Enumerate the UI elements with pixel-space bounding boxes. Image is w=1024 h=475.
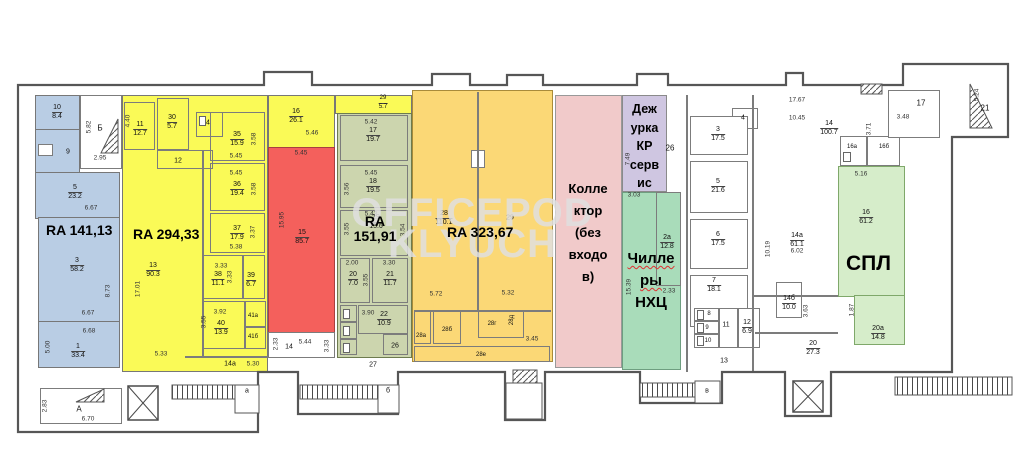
zone-label-dezhurka: Деж урка КР серв ис bbox=[622, 100, 667, 193]
dim: 5.33 bbox=[155, 351, 168, 358]
stair-triangle-B bbox=[101, 119, 118, 153]
room-label-39: 396.7 bbox=[246, 272, 256, 288]
zone-label-ra15191-l2: 151,91 bbox=[349, 229, 401, 244]
dim: 5.45 bbox=[295, 150, 308, 157]
toilet-icon bbox=[199, 116, 206, 126]
dim: 3.33 bbox=[227, 271, 234, 284]
dim: 6.68 bbox=[83, 328, 96, 335]
room-label-12: 12 bbox=[174, 158, 182, 165]
zone-label-ra14113: RA 141,13 bbox=[46, 222, 112, 238]
room-label-17r: 17 bbox=[917, 99, 926, 108]
dim: 2.83 bbox=[42, 400, 49, 413]
kollektor-l1: Колле bbox=[556, 178, 620, 200]
stair-hatch-a bbox=[172, 385, 235, 399]
room-label-38: 3811.1 bbox=[211, 271, 224, 287]
toilet-icon bbox=[343, 309, 350, 319]
room-label-28d: 28д bbox=[509, 315, 515, 325]
room-label-14a: 14а bbox=[224, 361, 236, 368]
stair-hatch-right bbox=[895, 377, 1012, 395]
stair-label-A: А bbox=[76, 405, 81, 414]
room-label-w9: 9 bbox=[705, 325, 708, 331]
kollektor-l2: ктор bbox=[556, 200, 620, 222]
dim: 6.67 bbox=[82, 310, 95, 317]
dim: 3.30 bbox=[383, 260, 396, 267]
room-label-28e: 28е bbox=[476, 352, 486, 358]
dim: 2.33 bbox=[273, 338, 280, 351]
dezhurka-l3: КР bbox=[622, 137, 667, 156]
kollektor-l3: (без bbox=[556, 222, 620, 244]
room-label-w12: 126.9 bbox=[742, 319, 752, 335]
dim: 5.46 bbox=[306, 130, 319, 137]
dim: 15.95 bbox=[279, 212, 286, 228]
room-label-28g: 28г bbox=[488, 321, 497, 327]
toilet-icon bbox=[697, 336, 704, 346]
dim: 17.67 bbox=[789, 97, 805, 104]
room-label-22: 2210.9 bbox=[377, 311, 391, 327]
dim: 5.44 bbox=[299, 339, 312, 346]
dim: 10.45 bbox=[789, 115, 805, 122]
dim: 3.03 bbox=[628, 192, 641, 199]
dim: 5.30 bbox=[247, 361, 260, 368]
floor-plan: OFFICEPOD KLYUCH RA 141,13 RA 294,33 RA … bbox=[0, 0, 1024, 475]
shaft-hatch-top bbox=[861, 84, 882, 94]
dim: 17.01 bbox=[135, 281, 142, 297]
stair-label-b: б bbox=[386, 388, 390, 395]
room-label-20a: 20а14.8 bbox=[871, 325, 885, 341]
dim: 6.67 bbox=[85, 205, 98, 212]
toilet-icon bbox=[697, 310, 704, 320]
dim: 3.92 bbox=[214, 309, 227, 316]
dim: 10.19 bbox=[765, 241, 772, 257]
room-label-20r: 2027.3 bbox=[806, 340, 820, 356]
room-label-30: 305.7 bbox=[167, 114, 177, 130]
dim: 3.45 bbox=[526, 336, 539, 343]
room-label-40: 4013.9 bbox=[214, 320, 228, 336]
room-label-17: 1719.7 bbox=[366, 127, 380, 143]
stair-hatch-v bbox=[640, 383, 695, 397]
chillery-l3: НХЦ bbox=[622, 292, 680, 314]
room-label-20: 207.0 bbox=[348, 271, 358, 287]
dezhurka-l2: урка bbox=[622, 119, 667, 138]
stair-triangle-A bbox=[76, 389, 104, 402]
room-label-w4: 4 bbox=[741, 115, 745, 122]
zone-label-ra29433: RA 294,33 bbox=[133, 226, 199, 242]
shaft-hatch-center bbox=[513, 370, 537, 383]
dim: 5.16 bbox=[855, 171, 868, 178]
zone-label-ra15191: RA 151,91 bbox=[349, 214, 401, 244]
room-label-w8: 8 bbox=[707, 311, 710, 317]
toilet-icon bbox=[843, 152, 851, 162]
dim: 3.63 bbox=[803, 305, 810, 318]
corridor-label-27: 27 bbox=[369, 362, 377, 369]
dim: 3.71 bbox=[866, 123, 873, 136]
room-label-16b: 16б bbox=[879, 144, 889, 150]
dim: 3.56 bbox=[344, 183, 351, 196]
room-label-14br: 14б10.0 bbox=[782, 295, 796, 311]
stair-hatch-b bbox=[300, 385, 378, 399]
zone-label-kollektor: Колле ктор (без входо в) bbox=[556, 178, 620, 288]
dim: 5.00 bbox=[45, 341, 52, 354]
room-label-w6: 617.5 bbox=[711, 231, 725, 247]
room-label-13: 1390.3 bbox=[146, 262, 160, 278]
room-label-29y: 295.7 bbox=[379, 95, 388, 111]
room-label-28b: 28б bbox=[442, 327, 452, 333]
chillery-l2: ры bbox=[622, 270, 680, 292]
dim: 5.82 bbox=[86, 121, 93, 134]
room-label-15: 1585.7 bbox=[295, 229, 309, 245]
dim: 5.42 bbox=[365, 119, 378, 126]
room-label-r14: 14100.7 bbox=[820, 120, 838, 136]
room-label-s16: 1661.2 bbox=[859, 209, 873, 225]
room-label-1: 133.4 bbox=[71, 343, 85, 359]
toilet-icon bbox=[343, 343, 350, 353]
dim: 3.37 bbox=[250, 226, 257, 239]
dim: 5.45 bbox=[230, 170, 243, 177]
dim: 4.40 bbox=[125, 115, 132, 128]
room-label-21: 2111.7 bbox=[383, 271, 396, 287]
dim: 5.38 bbox=[230, 244, 243, 251]
dezhurka-l1: Деж bbox=[622, 100, 667, 119]
room-label-w7: 718.1 bbox=[707, 277, 721, 293]
dezhurka-l5: ис bbox=[622, 174, 667, 193]
room-label-10: 108.4 bbox=[52, 104, 62, 120]
dim: 5.72 bbox=[430, 291, 443, 298]
dim: 3.58 bbox=[251, 183, 258, 196]
dim: 5.45 bbox=[365, 170, 378, 177]
dim: 6.02 bbox=[791, 248, 804, 255]
room-label-14w: 14 bbox=[285, 344, 293, 351]
corridor-label-13: 13 bbox=[720, 358, 728, 365]
room-label-41a: 41а bbox=[248, 313, 258, 319]
dim: 3.58 bbox=[251, 133, 258, 146]
dim: 3.33 bbox=[324, 340, 331, 353]
dim: 2.00 bbox=[346, 260, 359, 267]
dim: 1.87 bbox=[849, 304, 856, 317]
room-label-w5: 521.6 bbox=[711, 178, 725, 194]
zone-label-ra15191-l1: RA bbox=[349, 214, 401, 229]
room-label-w3: 317.5 bbox=[711, 126, 725, 142]
shaft-box-center bbox=[506, 383, 542, 419]
stair-label-v: в bbox=[705, 388, 709, 395]
room-label-26o: 26 bbox=[391, 343, 399, 350]
room-label-37: 3717.9 bbox=[230, 225, 244, 241]
kollektor-l5: в) bbox=[556, 266, 620, 288]
room-label-16a: 16а bbox=[847, 144, 857, 150]
dim: 3.90 bbox=[362, 310, 375, 317]
elevator-icon bbox=[793, 381, 823, 412]
stair-label-B: Б bbox=[97, 124, 102, 133]
room-label-16: 1626.1 bbox=[289, 108, 303, 124]
room-label-w10: 10 bbox=[705, 338, 712, 344]
room-label-11: 1112.7 bbox=[133, 121, 147, 137]
room-label-29: 29 bbox=[506, 215, 514, 222]
toilet-icon bbox=[697, 323, 704, 333]
dim: 3.55 bbox=[201, 316, 208, 329]
dim: 5.24 bbox=[974, 89, 981, 102]
room-label-18: 1819.5 bbox=[366, 178, 380, 194]
zone-label-spl: СПЛ bbox=[846, 252, 891, 276]
toilet-icon bbox=[343, 326, 350, 336]
room-label-28a: 28а bbox=[416, 333, 426, 339]
room-label-3: 358.2 bbox=[70, 257, 84, 273]
dezhurka-l4: серв bbox=[622, 156, 667, 175]
room-label-14ar: 14а61.1 bbox=[790, 232, 804, 248]
dim: 5.32 bbox=[502, 290, 515, 297]
dim: 3.33 bbox=[215, 263, 228, 270]
dim: 8.73 bbox=[105, 285, 112, 298]
dim: 5.45 bbox=[230, 153, 243, 160]
chillery-l1: Чилле bbox=[622, 248, 680, 270]
kollektor-l4: входо bbox=[556, 244, 620, 266]
dim: 2.95 bbox=[94, 155, 107, 162]
elevator-icon bbox=[128, 386, 158, 420]
stair-label-21: 21 bbox=[981, 104, 990, 113]
dim: 3.55 bbox=[363, 274, 370, 287]
room-label-w11: 11 bbox=[722, 322, 729, 329]
stair-label-a: а bbox=[245, 388, 249, 395]
room-label-9: 9 bbox=[66, 149, 70, 156]
dim: 6.70 bbox=[82, 416, 95, 423]
room-label-36: 3619.4 bbox=[230, 181, 244, 197]
zone-label-chillery: Чилле ры НХЦ bbox=[622, 248, 680, 314]
room-label-5: 523.2 bbox=[68, 184, 82, 200]
room-label-35: 3515.9 bbox=[230, 131, 244, 147]
dim: 3.48 bbox=[897, 114, 910, 121]
room-label-41b: 41б bbox=[248, 334, 258, 340]
zone-label-ra32367: RA 323,67 bbox=[447, 224, 513, 240]
